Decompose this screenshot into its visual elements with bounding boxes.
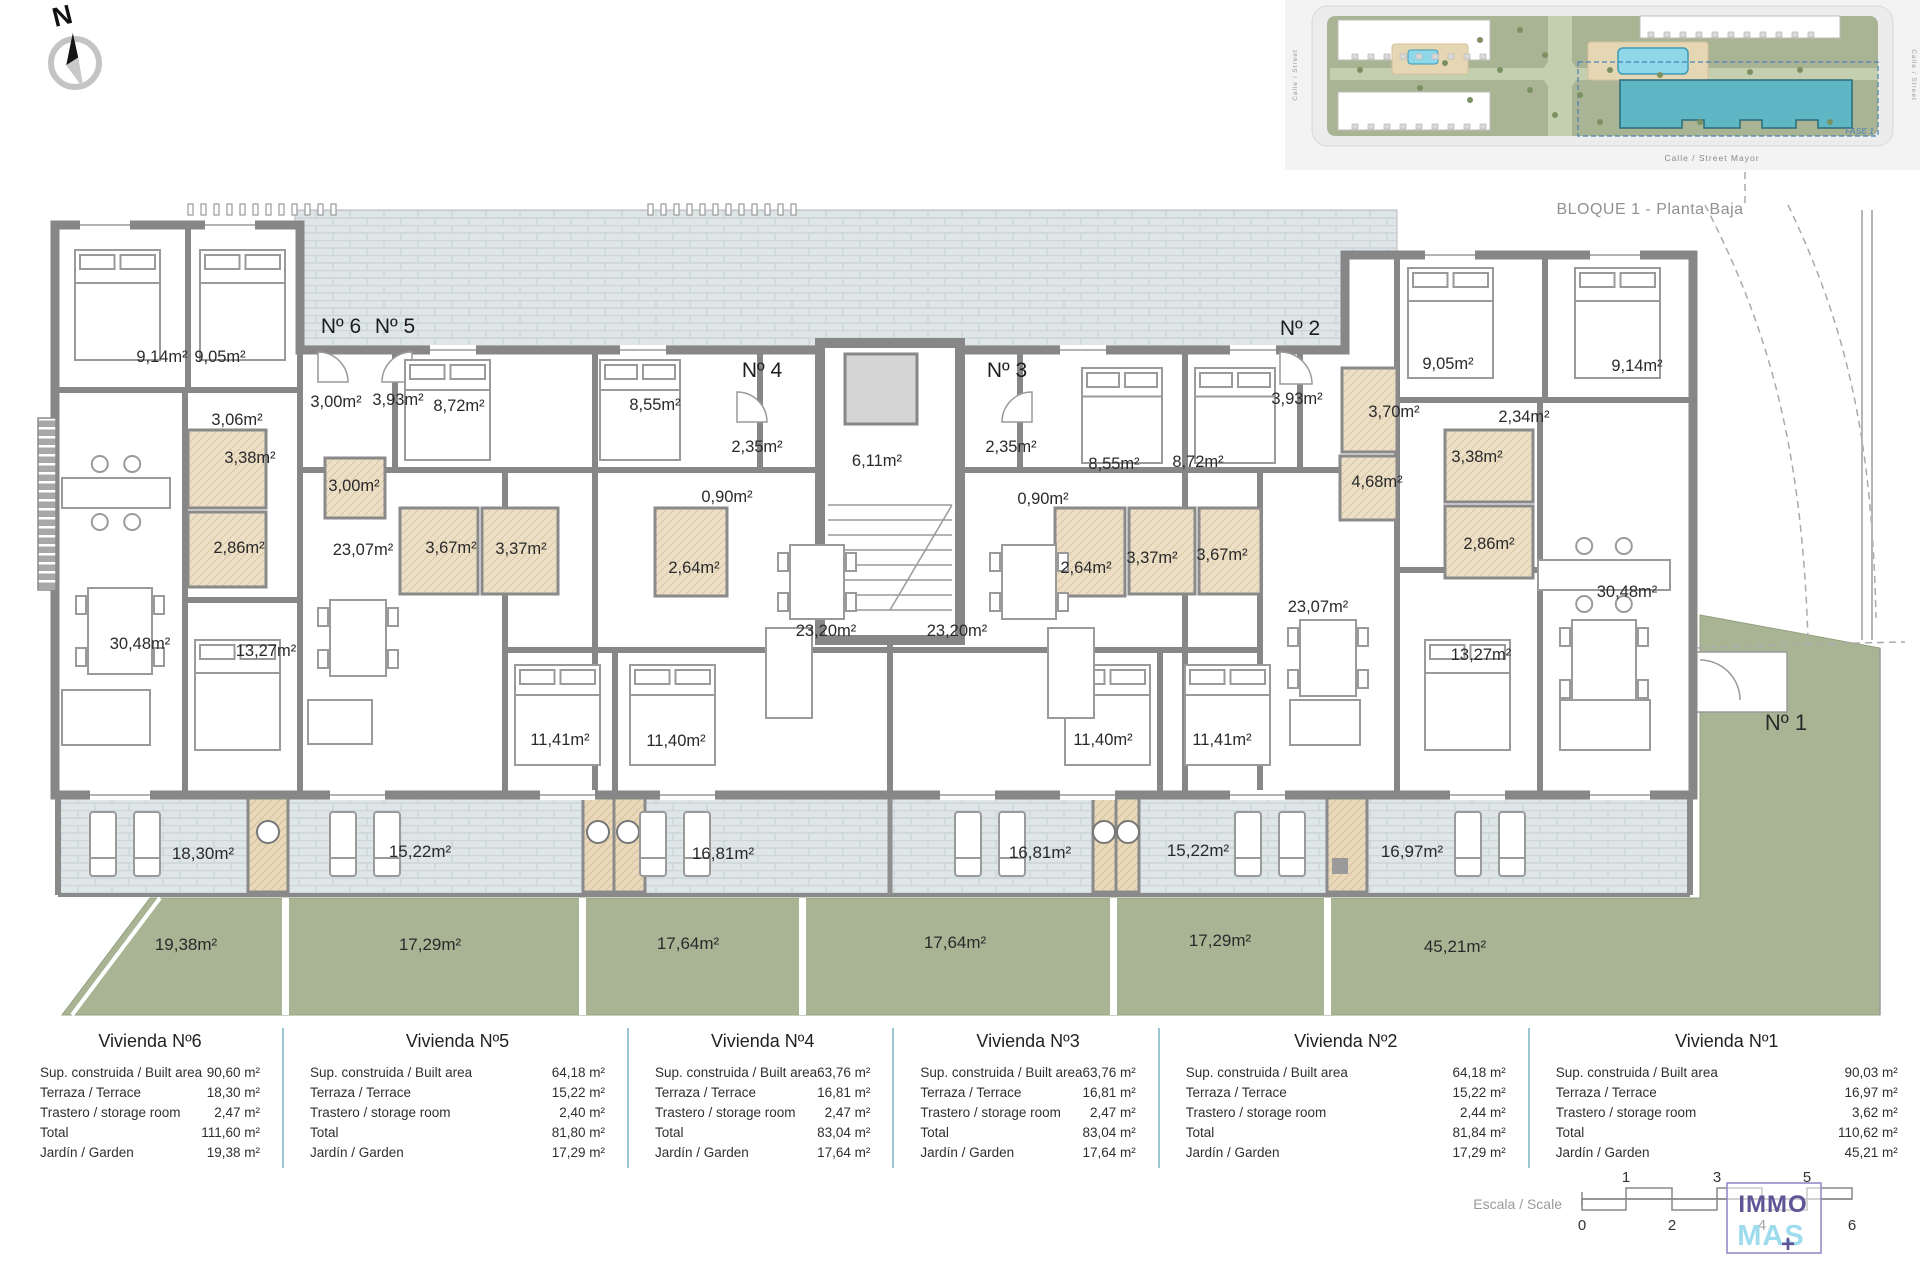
area-label-room: 23,07m² bbox=[1288, 598, 1349, 616]
unit-table-4: Vivienda Nº4Sup. construida / Built area… bbox=[627, 1028, 892, 1168]
inset-unit-tick bbox=[1728, 32, 1734, 37]
unit-table-row: Trastero / storage room2,47 m² bbox=[40, 1103, 260, 1123]
row-value: 16,81 m² bbox=[1082, 1083, 1135, 1103]
unit-table-row: Sup. construida / Built area90,60 m² bbox=[40, 1063, 260, 1083]
row-label: Total bbox=[40, 1123, 69, 1143]
area-label-room: 2,34m² bbox=[1498, 408, 1550, 426]
unit-table-row: Total81,84 m² bbox=[1186, 1123, 1506, 1143]
row-value: 63,76 m² bbox=[1082, 1063, 1135, 1083]
area-label-room: 30,48m² bbox=[1597, 583, 1658, 601]
row-label: Terraza / Terrace bbox=[1556, 1083, 1657, 1103]
parking-tick bbox=[240, 204, 245, 215]
sofa bbox=[1560, 700, 1650, 750]
scale-number: 3 bbox=[1713, 1169, 1721, 1186]
parking-tick bbox=[266, 204, 271, 215]
inset-tree bbox=[1542, 52, 1548, 58]
dining-table bbox=[318, 600, 398, 676]
area-label-terrace: 15,22m² bbox=[1167, 841, 1230, 860]
row-value: 18,30 m² bbox=[207, 1083, 260, 1103]
area-label-entry: Nº 4 bbox=[742, 359, 783, 382]
inset-unit-tick bbox=[1744, 32, 1750, 37]
area-label-terrace: 16,97m² bbox=[1381, 842, 1444, 861]
area-label-room: 0,90m² bbox=[1017, 490, 1069, 508]
row-label: Trastero / storage room bbox=[655, 1103, 796, 1123]
lounge-chair bbox=[955, 812, 981, 876]
inset-pool bbox=[1618, 48, 1688, 74]
area-label-room: 13,27m² bbox=[236, 642, 297, 660]
row-value: 15,22 m² bbox=[1452, 1083, 1505, 1103]
unit-table-row: Sup. construida / Built area64,18 m² bbox=[1186, 1063, 1506, 1083]
parking-tick bbox=[188, 204, 193, 215]
row-value: 81,84 m² bbox=[1452, 1123, 1505, 1143]
unit-table-row: Jardín / Garden45,21 m² bbox=[1556, 1143, 1898, 1163]
unit-table-2: Vivienda Nº2Sup. construida / Built area… bbox=[1158, 1028, 1528, 1168]
lounge-chair bbox=[1499, 812, 1525, 876]
inset-unit-tick bbox=[1432, 124, 1438, 129]
area-label-room: 23,20m² bbox=[796, 622, 857, 640]
unit-table-row: Trastero / storage room2,47 m² bbox=[920, 1103, 1135, 1123]
sofa bbox=[766, 628, 812, 718]
row-value: 2,44 m² bbox=[1460, 1103, 1506, 1123]
inset-unit-tick bbox=[1464, 124, 1470, 129]
unit-table-6: Vivienda Nº6Sup. construida / Built area… bbox=[14, 1028, 282, 1168]
area-label-room: 3,67m² bbox=[425, 539, 477, 557]
inset-unit-tick bbox=[1712, 32, 1718, 37]
row-label: Terraza / Terrace bbox=[40, 1083, 141, 1103]
immomas-logo: IMMO MAS + bbox=[1727, 1183, 1821, 1258]
area-label-room: 11,41m² bbox=[530, 731, 590, 749]
unit-table-row: Terraza / Terrace15,22 m² bbox=[310, 1083, 605, 1103]
terrace-tiles bbox=[58, 795, 1690, 895]
area-label-room: 3,37m² bbox=[1126, 549, 1178, 567]
inset-unit-tick bbox=[1664, 32, 1670, 37]
lounge-chair bbox=[134, 812, 160, 876]
inset-tree bbox=[1497, 67, 1503, 73]
unit-table-title: Vivienda Nº4 bbox=[655, 1028, 870, 1054]
inset-unit-tick bbox=[1352, 54, 1358, 59]
inset-tree bbox=[1477, 37, 1483, 43]
area-label-room: 3,67m² bbox=[1196, 546, 1248, 564]
parking-tick bbox=[331, 204, 336, 215]
inset-tree bbox=[1607, 67, 1613, 73]
row-label: Total bbox=[920, 1123, 949, 1143]
area-label-room: 23,07m² bbox=[333, 541, 394, 559]
row-value: 17,29 m² bbox=[1452, 1143, 1505, 1163]
area-label-room: 8,72m² bbox=[1172, 453, 1224, 471]
row-label: Sup. construida / Built area bbox=[310, 1063, 472, 1083]
area-label-room: 23,20m² bbox=[927, 622, 988, 640]
window bbox=[940, 790, 995, 800]
inset-unit-tick bbox=[1384, 54, 1390, 59]
bed bbox=[1082, 368, 1162, 463]
row-value: 45,21 m² bbox=[1844, 1143, 1897, 1163]
area-label-room: 30,48m² bbox=[110, 635, 171, 653]
garden-divider bbox=[1110, 898, 1117, 1015]
sofa bbox=[62, 690, 150, 745]
row-value: 15,22 m² bbox=[552, 1083, 605, 1103]
area-label-entry: Nº 5 bbox=[375, 315, 415, 338]
row-label: Jardín / Garden bbox=[1556, 1143, 1650, 1163]
window bbox=[80, 220, 130, 230]
inset-tree bbox=[1657, 72, 1663, 78]
parking-tick bbox=[661, 204, 666, 215]
row-label: Jardín / Garden bbox=[310, 1143, 404, 1163]
area-label-room: 11,41m² bbox=[1192, 731, 1252, 749]
unit-table-row: Sup. construida / Built area90,03 m² bbox=[1556, 1063, 1898, 1083]
row-value: 16,81 m² bbox=[817, 1083, 870, 1103]
row-label: Jardín / Garden bbox=[1186, 1143, 1280, 1163]
unit-table-title: Vivienda Nº3 bbox=[920, 1028, 1135, 1054]
area-label-room: 2,64m² bbox=[668, 559, 720, 577]
window bbox=[430, 345, 476, 355]
row-value: 17,64 m² bbox=[1082, 1143, 1135, 1163]
area-label-room: 8,55m² bbox=[1088, 455, 1140, 473]
parking-tick bbox=[279, 204, 284, 215]
parking-tick bbox=[674, 204, 679, 215]
unit-table-row: Terraza / Terrace16,97 m² bbox=[1556, 1083, 1898, 1103]
inset-tree bbox=[1442, 60, 1448, 66]
parking-tick bbox=[739, 204, 744, 215]
row-label: Jardín / Garden bbox=[655, 1143, 749, 1163]
row-label: Terraza / Terrace bbox=[310, 1083, 411, 1103]
area-label-room: 2,35m² bbox=[985, 438, 1037, 456]
scale-label: Escala / Scale bbox=[1473, 1196, 1562, 1212]
parking-tick bbox=[227, 204, 232, 215]
unit-table-row: Total83,04 m² bbox=[920, 1123, 1135, 1143]
row-label: Terraza / Terrace bbox=[920, 1083, 1021, 1103]
dining-table bbox=[76, 588, 164, 674]
window bbox=[1590, 790, 1650, 800]
window bbox=[1450, 790, 1505, 800]
scale-number: 1 bbox=[1622, 1169, 1630, 1186]
row-label: Sup. construida / Built area bbox=[1556, 1063, 1718, 1083]
area-label-room: 9,05m² bbox=[194, 348, 246, 366]
garden-divider bbox=[282, 898, 289, 1015]
window bbox=[540, 790, 595, 800]
bed bbox=[630, 665, 715, 765]
inset-unit-tick bbox=[1480, 124, 1486, 129]
row-label: Trastero / storage room bbox=[920, 1103, 1061, 1123]
row-value: 16,97 m² bbox=[1844, 1083, 1897, 1103]
unit-table-row: Sup. construida / Built area63,76 m² bbox=[655, 1063, 870, 1083]
row-value: 19,38 m² bbox=[207, 1143, 260, 1163]
window bbox=[1230, 345, 1276, 355]
unit-table-row: Total83,04 m² bbox=[655, 1123, 870, 1143]
parking-tick bbox=[765, 204, 770, 215]
parking-tick bbox=[687, 204, 692, 215]
inset-street-bottom-label: Calle / Street Mayor bbox=[1664, 153, 1759, 163]
inset-unit-tick bbox=[1760, 32, 1766, 37]
garden-divider bbox=[1324, 898, 1331, 1015]
unit-table-title: Vivienda Nº6 bbox=[40, 1028, 260, 1054]
unit-table-row: Total81,80 m² bbox=[310, 1123, 605, 1143]
area-label-room: 3,93m² bbox=[1271, 390, 1323, 408]
inset-fase-label: FASE 1 bbox=[1845, 126, 1874, 136]
dining-table bbox=[1560, 620, 1648, 706]
area-label-garden: 17,29m² bbox=[1189, 931, 1252, 950]
area-label-room: 3,06m² bbox=[211, 411, 263, 429]
unit-table-row: Jardín / Garden17,29 m² bbox=[1186, 1143, 1506, 1163]
inset-unit-tick bbox=[1696, 32, 1702, 37]
row-label: Trastero / storage room bbox=[310, 1103, 451, 1123]
unit-table-row: Trastero / storage room2,44 m² bbox=[1186, 1103, 1506, 1123]
compass-north-label: N bbox=[49, 0, 75, 33]
area-label-room: 13,27m² bbox=[1451, 646, 1512, 664]
terrace-band bbox=[58, 795, 1690, 895]
area-label-room: 3,37m² bbox=[495, 540, 547, 558]
inset-street-left-label: Calle / Street bbox=[1292, 49, 1299, 101]
inset-unit-tick bbox=[1680, 32, 1686, 37]
inset-unit-tick bbox=[1368, 54, 1374, 59]
area-label-room: 8,72m² bbox=[433, 397, 485, 415]
window bbox=[1230, 790, 1285, 800]
sofa bbox=[1290, 700, 1360, 745]
window bbox=[90, 790, 150, 800]
unit-table-row: Terraza / Terrace16,81 m² bbox=[655, 1083, 870, 1103]
unit-table-title: Vivienda Nº2 bbox=[1186, 1028, 1506, 1054]
area-label-room: 9,14m² bbox=[1611, 357, 1663, 375]
row-value: 17,29 m² bbox=[552, 1143, 605, 1163]
area-label-room: 11,40m² bbox=[1073, 731, 1133, 749]
inset-unit-tick bbox=[1776, 32, 1782, 37]
bed bbox=[515, 665, 600, 765]
inset-tree bbox=[1517, 27, 1523, 33]
unit-table-row: Trastero / storage room2,47 m² bbox=[655, 1103, 870, 1123]
inset-unit-tick bbox=[1808, 32, 1814, 37]
walkway-tiles bbox=[295, 210, 1397, 350]
row-label: Trastero / storage room bbox=[1556, 1103, 1697, 1123]
unit-table-row: Total110,62 m² bbox=[1556, 1123, 1898, 1143]
row-value: 2,47 m² bbox=[825, 1103, 871, 1123]
row-label: Total bbox=[310, 1123, 339, 1143]
area-label-room: 11,40m² bbox=[646, 732, 706, 750]
unit-table-row: Trastero / storage room2,40 m² bbox=[310, 1103, 605, 1123]
inset-unit-tick bbox=[1792, 32, 1798, 37]
window bbox=[660, 790, 715, 800]
row-value: 2,40 m² bbox=[559, 1103, 605, 1123]
area-label-room: 3,00m² bbox=[328, 477, 380, 495]
inset-unit-tick bbox=[1448, 124, 1454, 129]
area-label-garden: 17,29m² bbox=[399, 935, 462, 954]
lounge-chair bbox=[1279, 812, 1305, 876]
row-label: Jardín / Garden bbox=[920, 1143, 1014, 1163]
lounge-chair bbox=[1235, 812, 1261, 876]
dining-table bbox=[990, 545, 1068, 619]
unit-table-title: Vivienda Nº1 bbox=[1556, 1028, 1898, 1054]
garden-divider bbox=[579, 898, 586, 1015]
row-label: Sup. construida / Built area bbox=[40, 1063, 202, 1083]
unit-table-row: Terraza / Terrace15,22 m² bbox=[1186, 1083, 1506, 1103]
area-label-entry: Nº 6 bbox=[321, 315, 361, 338]
inset-street-right-label: Calle / Street bbox=[1910, 49, 1917, 101]
sofa bbox=[308, 700, 372, 744]
window bbox=[330, 790, 385, 800]
parking-tick bbox=[292, 204, 297, 215]
washer-icon bbox=[1093, 821, 1115, 843]
area-label-room: 2,35m² bbox=[731, 438, 783, 456]
washer-icon bbox=[257, 821, 279, 843]
lounge-chair bbox=[640, 812, 666, 876]
inset-unit-tick bbox=[1480, 54, 1486, 59]
unit-table-3: Vivienda Nº3Sup. construida / Built area… bbox=[892, 1028, 1157, 1168]
window bbox=[1060, 790, 1115, 800]
logo-immo-text: IMMO bbox=[1738, 1191, 1807, 1218]
area-label-room: 2,64m² bbox=[1060, 559, 1112, 577]
scale-number: 6 bbox=[1848, 1217, 1856, 1234]
row-value: 63,76 m² bbox=[817, 1063, 870, 1083]
unit-table-row: Sup. construida / Built area63,76 m² bbox=[920, 1063, 1135, 1083]
left-rail-strip bbox=[38, 418, 56, 590]
lift-shaft bbox=[845, 354, 917, 424]
row-label: Trastero / storage room bbox=[1186, 1103, 1327, 1123]
row-label: Terraza / Terrace bbox=[1186, 1083, 1287, 1103]
inset-unit-tick bbox=[1464, 54, 1470, 59]
row-value: 3,62 m² bbox=[1852, 1103, 1898, 1123]
area-label-room: 3,00m² bbox=[310, 393, 362, 411]
inset-unit-tick bbox=[1648, 32, 1654, 37]
area-label-room: 3,70m² bbox=[1368, 403, 1420, 421]
compass: N bbox=[49, 0, 99, 91]
area-label-room: 9,14m² bbox=[136, 348, 188, 366]
inset-tree bbox=[1827, 119, 1833, 125]
unit-table-row: Trastero / storage room3,62 m² bbox=[1556, 1103, 1898, 1123]
area-label-entry: Nº 3 bbox=[987, 359, 1027, 382]
parking-tick bbox=[253, 204, 258, 215]
row-label: Sup. construida / Built area bbox=[655, 1063, 817, 1083]
inset-unit-tick bbox=[1400, 124, 1406, 129]
inset-tree bbox=[1577, 92, 1583, 98]
row-label: Sup. construida / Built area bbox=[1186, 1063, 1348, 1083]
area-label-garden: 17,64m² bbox=[924, 933, 987, 952]
inset-unit-tick bbox=[1416, 54, 1422, 59]
area-label-garden: 17,64m² bbox=[657, 934, 720, 953]
parking-tick bbox=[214, 204, 219, 215]
inset-tree bbox=[1552, 112, 1558, 118]
row-value: 2,47 m² bbox=[1090, 1103, 1136, 1123]
row-label: Total bbox=[1556, 1123, 1585, 1143]
parking-tick bbox=[700, 204, 705, 215]
area-label-room: 6,11m² bbox=[852, 452, 903, 470]
area-label-room: 3,93m² bbox=[372, 391, 424, 409]
row-value: 83,04 m² bbox=[817, 1123, 870, 1143]
unit-table-row: Jardín / Garden17,64 m² bbox=[920, 1143, 1135, 1163]
inset-tree bbox=[1597, 119, 1603, 125]
area-label-room: 8,55m² bbox=[629, 396, 681, 414]
inset-tree bbox=[1467, 97, 1473, 103]
area-label-room: 9,05m² bbox=[1422, 355, 1474, 373]
inset-unit-tick bbox=[1352, 124, 1358, 129]
inset-tree bbox=[1527, 87, 1533, 93]
floor-plan: Nº 6Nº 5Nº 4Nº 3Nº 2Nº 19,14m²9,05m²3,06… bbox=[38, 172, 1905, 1015]
inset-tree bbox=[1417, 85, 1423, 91]
row-value: 81,80 m² bbox=[552, 1123, 605, 1143]
plan-title: BLOQUE 1 - Planta Baja bbox=[1556, 201, 1743, 218]
row-label: Trastero / storage room bbox=[40, 1103, 181, 1123]
row-value: 110,62 m² bbox=[1838, 1123, 1898, 1143]
unit-table-row: Jardín / Garden17,64 m² bbox=[655, 1143, 870, 1163]
area-label-garden: 45,21m² bbox=[1424, 937, 1487, 956]
area-label-terrace: 18,30m² bbox=[172, 844, 235, 863]
area-label-room: 3,38m² bbox=[1451, 448, 1503, 466]
dining-table bbox=[1288, 620, 1368, 696]
inset-tree bbox=[1747, 69, 1753, 75]
parking-tick bbox=[752, 204, 757, 215]
row-value: 90,60 m² bbox=[207, 1063, 260, 1083]
bed bbox=[200, 250, 285, 360]
inset-unit-tick bbox=[1448, 54, 1454, 59]
logo-plus-icon: + bbox=[1781, 1231, 1795, 1258]
area-label-terrace: 15,22m² bbox=[389, 842, 452, 861]
garden-band bbox=[62, 898, 1327, 1015]
unit-table-row: Terraza / Terrace18,30 m² bbox=[40, 1083, 260, 1103]
inset-tree bbox=[1797, 67, 1803, 73]
unit-table-row: Total111,60 m² bbox=[40, 1123, 260, 1143]
row-value: 90,03 m² bbox=[1844, 1063, 1897, 1083]
unit-table-row: Sup. construida / Built area64,18 m² bbox=[310, 1063, 605, 1083]
parking-tick bbox=[305, 204, 310, 215]
parking-tick bbox=[201, 204, 206, 215]
row-value: 64,18 m² bbox=[1452, 1063, 1505, 1083]
site-plan-inset: Calle / Street Mayor Calle / Street Call… bbox=[1285, 0, 1920, 170]
window bbox=[205, 220, 255, 230]
unit-table-row: Jardín / Garden19,38 m² bbox=[40, 1143, 260, 1163]
inset-tree bbox=[1697, 119, 1703, 125]
unit-table-row: Jardín / Garden17,29 m² bbox=[310, 1143, 605, 1163]
row-value: 64,18 m² bbox=[552, 1063, 605, 1083]
area-label-garden: 19,38m² bbox=[155, 935, 218, 954]
row-label: Terraza / Terrace bbox=[655, 1083, 756, 1103]
area-label-entry: Nº 2 bbox=[1280, 317, 1320, 340]
row-label: Total bbox=[655, 1123, 684, 1143]
unit-area-tables: Vivienda Nº6Sup. construida / Built area… bbox=[14, 1028, 1906, 1168]
inset-unit-tick bbox=[1384, 124, 1390, 129]
row-value: 2,47 m² bbox=[214, 1103, 260, 1123]
inset-unit-tick bbox=[1416, 124, 1422, 129]
lounge-chair bbox=[330, 812, 356, 876]
area-label-room: 4,68m² bbox=[1351, 473, 1403, 491]
area-label-terrace: 16,81m² bbox=[1009, 843, 1072, 862]
area-label-room: 3,38m² bbox=[224, 449, 276, 467]
dining-table bbox=[778, 545, 856, 619]
lounge-chair bbox=[1455, 812, 1481, 876]
area-label-room: 0,90m² bbox=[701, 488, 753, 506]
inset-path-circle bbox=[1543, 57, 1577, 91]
row-label: Sup. construida / Built area bbox=[920, 1063, 1082, 1083]
row-value: 111,60 m² bbox=[201, 1123, 260, 1143]
bed bbox=[1195, 368, 1275, 463]
parking-tick bbox=[648, 204, 653, 215]
bed bbox=[1185, 665, 1270, 765]
row-label: Total bbox=[1186, 1123, 1215, 1143]
sofa bbox=[1048, 628, 1094, 718]
scale-number: 2 bbox=[1668, 1217, 1676, 1234]
lounge-chair bbox=[90, 812, 116, 876]
unit-table-5: Vivienda Nº5Sup. construida / Built area… bbox=[282, 1028, 627, 1168]
window bbox=[1590, 250, 1640, 260]
window bbox=[1060, 345, 1106, 355]
inset-unit-tick bbox=[1368, 124, 1374, 129]
scale-number: 0 bbox=[1578, 1217, 1586, 1234]
garden-divider bbox=[799, 898, 806, 1015]
parking-tick bbox=[318, 204, 323, 215]
unit-table-row: Terraza / Terrace16,81 m² bbox=[920, 1083, 1135, 1103]
inset-unit-tick bbox=[1432, 54, 1438, 59]
floorplan-page: Calle / Street Mayor Calle / Street Call… bbox=[0, 0, 1920, 1280]
unit-table-title: Vivienda Nº5 bbox=[310, 1028, 605, 1054]
parking-tick bbox=[713, 204, 718, 215]
parking-tick bbox=[778, 204, 783, 215]
area-label-terrace: 16,81m² bbox=[692, 844, 755, 863]
